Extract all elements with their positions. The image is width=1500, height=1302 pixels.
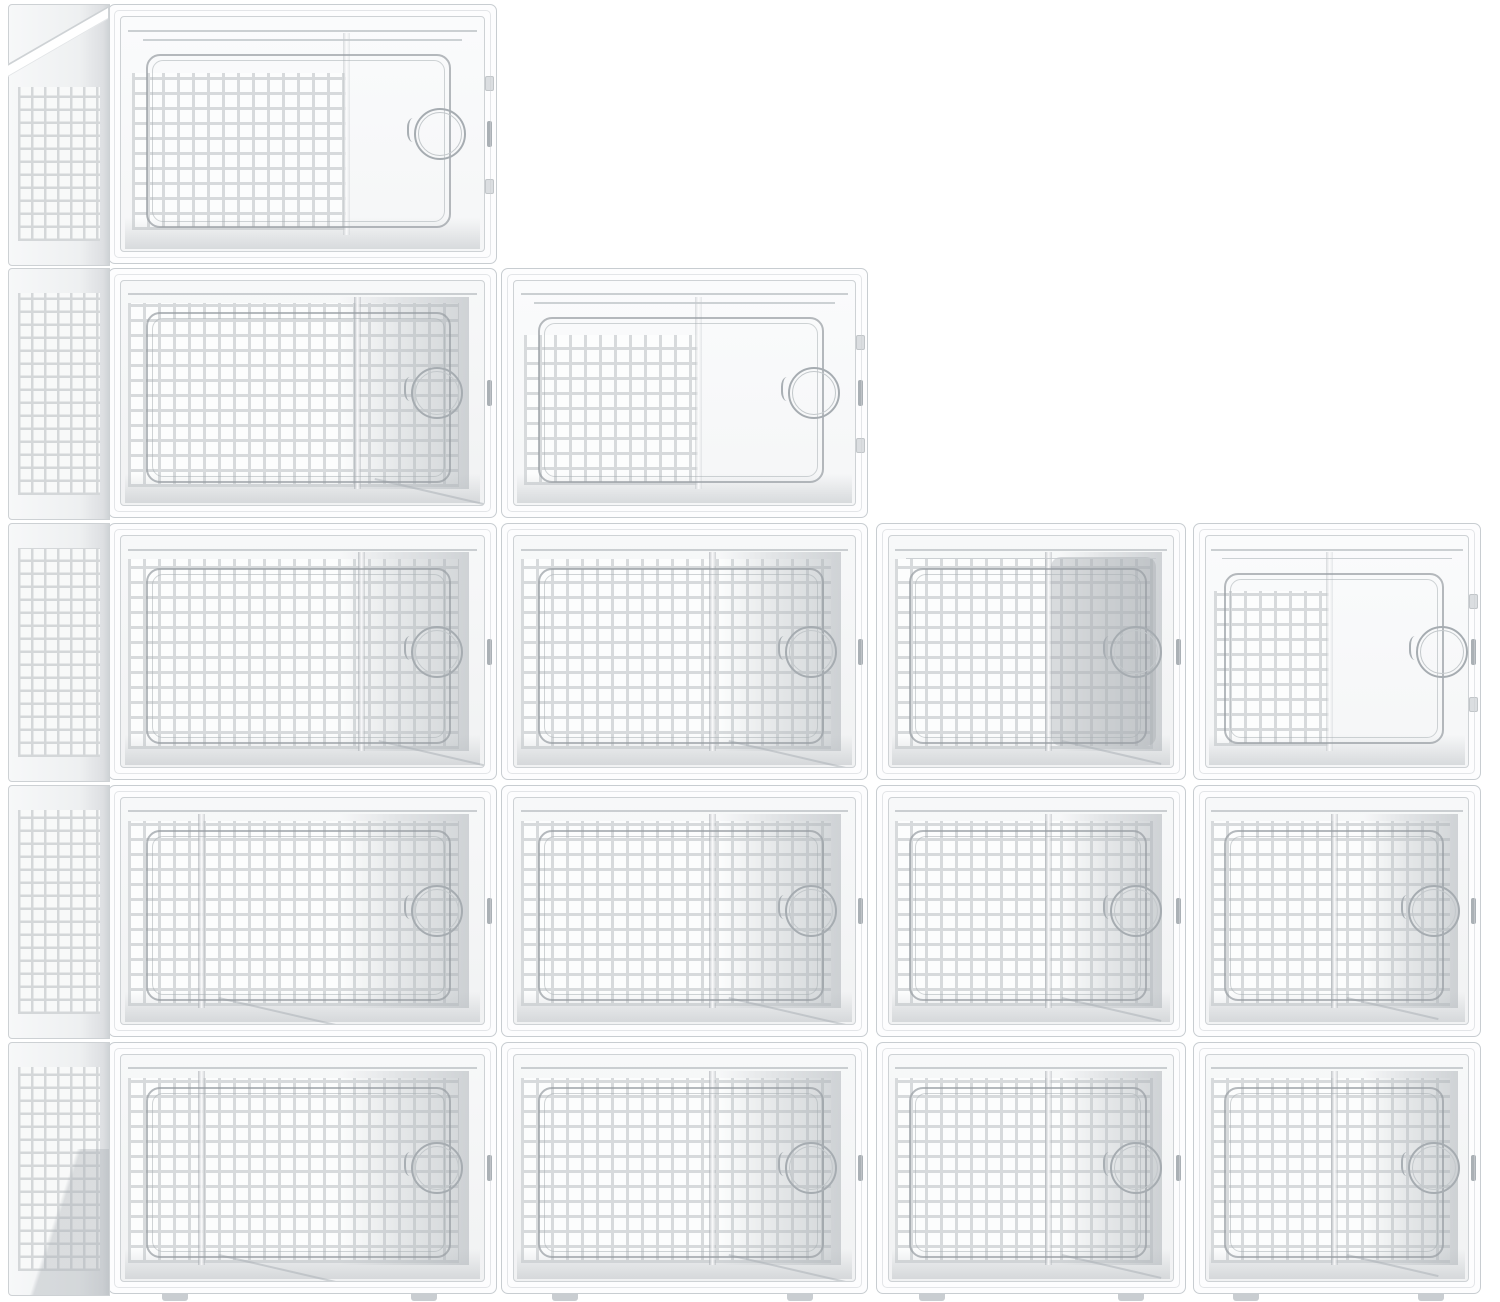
pull-handle-icon (1110, 885, 1162, 937)
box-front-face (501, 523, 868, 780)
storage-box (108, 268, 497, 518)
box-top-edge-line (1211, 549, 1463, 551)
box-interior (1205, 797, 1469, 1025)
door-catch (1469, 594, 1478, 609)
box-top-edge-line (128, 293, 477, 295)
pull-handle-icon (414, 108, 466, 160)
box-front-face (108, 268, 497, 518)
door-outline-inner (1230, 579, 1438, 738)
latch-slot (487, 380, 492, 406)
pull-handle-icon (411, 1142, 463, 1194)
box-interior (1205, 1054, 1469, 1282)
storage-box (501, 268, 868, 518)
box-top-edge-line (128, 549, 477, 551)
box-front-face (876, 1042, 1186, 1294)
box-interior (120, 280, 485, 506)
latch-slot (1176, 639, 1181, 665)
box-top-edge-line (895, 810, 1168, 812)
box-interior (120, 1054, 485, 1282)
box-top-edge-line (128, 810, 477, 812)
box-front-face (501, 1042, 868, 1294)
foot-pad (787, 1294, 813, 1301)
box-front-face (108, 523, 497, 780)
foot-pad (1418, 1294, 1444, 1301)
door-outline-inner (152, 318, 445, 476)
box-front-face (876, 523, 1186, 780)
box-interior (120, 797, 485, 1025)
side-perforated-grid (18, 548, 100, 757)
box-interior (513, 797, 856, 1025)
latch-slot (487, 639, 492, 665)
box-top-edge-line (895, 549, 1168, 551)
storage-box (501, 523, 868, 780)
box-interior (1205, 535, 1469, 768)
product-photo: Product photo on a white background: fif… (0, 0, 1500, 1302)
box-top-edge-line (128, 30, 477, 32)
latch-slot (1176, 1155, 1181, 1181)
box-top-edge-line (521, 1067, 848, 1069)
lid-edge-line (906, 558, 1156, 560)
latch-slot (858, 898, 863, 924)
side-floor-shadow (9, 1149, 109, 1295)
door-catch (1469, 697, 1478, 712)
pull-handle-icon (1408, 1142, 1460, 1194)
door-outline-inner (544, 836, 818, 996)
storage-box (501, 785, 868, 1037)
door-outline-inner (544, 1093, 818, 1253)
foot-pad (1118, 1294, 1144, 1301)
box-top-edge-line (1211, 1067, 1463, 1069)
storage-box (1193, 785, 1481, 1037)
latch-slot (487, 121, 492, 147)
storage-box (108, 785, 497, 1037)
latch-slot (858, 380, 863, 406)
box-front-face (876, 785, 1186, 1037)
storage-box (876, 1042, 1186, 1294)
latch-slot (1471, 639, 1476, 665)
box-side-panel (8, 523, 110, 782)
pull-handle-icon (785, 885, 837, 937)
foot-pad (1233, 1294, 1259, 1301)
box-interior (888, 797, 1174, 1025)
box-side-panel (8, 268, 110, 520)
box-side-panel (8, 1042, 110, 1296)
lid-edge-line (143, 39, 462, 41)
box-top-edge-line (521, 549, 848, 551)
latch-slot (1471, 1155, 1476, 1181)
box-interior (120, 535, 485, 768)
box-top-edge-line (521, 293, 848, 295)
storage-box (1193, 523, 1481, 780)
lid-edge-line (534, 302, 834, 304)
pull-handle-icon (411, 626, 463, 678)
box-interior (888, 1054, 1174, 1282)
foot-pad (162, 1294, 188, 1301)
pull-handle-icon (1110, 1142, 1162, 1194)
storage-box (108, 1042, 497, 1294)
door-catch (856, 438, 865, 453)
door-catch (485, 76, 494, 91)
pull-handle-icon (1110, 626, 1162, 678)
storage-box (876, 523, 1186, 780)
lid-edge-line (1222, 558, 1453, 560)
latch-slot (1176, 898, 1181, 924)
storage-box (501, 1042, 868, 1294)
pull-handle-icon (788, 367, 840, 419)
storage-box (1193, 1042, 1481, 1294)
door-outline-inner (152, 574, 445, 738)
door-outline-inner (544, 323, 818, 477)
box-front-face (108, 1042, 497, 1294)
box-front-face (501, 268, 868, 518)
latch-slot (858, 639, 863, 665)
side-perforated-grid (18, 87, 100, 241)
box-top-edge-line (1211, 810, 1463, 812)
storage-box (108, 4, 497, 264)
box-front-face (108, 4, 497, 264)
box-front-face (1193, 1042, 1481, 1294)
latch-slot (487, 1155, 492, 1181)
door-outline-inner (152, 60, 445, 221)
box-front-face (1193, 785, 1481, 1037)
box-top-edge-line (128, 1067, 477, 1069)
side-perforated-grid (18, 293, 100, 495)
box-front-face (501, 785, 868, 1037)
box-front-face (1193, 523, 1481, 780)
box-interior (513, 280, 856, 506)
pull-handle-icon (785, 626, 837, 678)
door-outline-inner (544, 574, 818, 738)
door-catch (485, 179, 494, 194)
pull-handle-icon (785, 1142, 837, 1194)
storage-box (876, 785, 1186, 1037)
foot-pad (919, 1294, 945, 1301)
pull-handle-icon (411, 885, 463, 937)
box-interior (120, 16, 485, 252)
box-top-edge-line (895, 1067, 1168, 1069)
latch-slot (487, 898, 492, 924)
box-interior (888, 535, 1174, 768)
pull-handle-icon (1408, 885, 1460, 937)
side-perforated-grid (18, 810, 100, 1014)
foot-pad (411, 1294, 437, 1301)
pull-handle-icon (411, 367, 463, 419)
latch-slot (858, 1155, 863, 1181)
box-interior (513, 535, 856, 768)
latch-slot (1471, 898, 1476, 924)
door-outline-inner (152, 1093, 445, 1253)
storage-box (108, 523, 497, 780)
door-catch (856, 335, 865, 350)
foot-pad (552, 1294, 578, 1301)
box-interior (513, 1054, 856, 1282)
box-front-face (108, 785, 497, 1037)
box-top-edge-line (521, 810, 848, 812)
box-side-panel (8, 785, 110, 1039)
pull-handle-icon (1416, 626, 1468, 678)
door-outline-inner (152, 836, 445, 996)
